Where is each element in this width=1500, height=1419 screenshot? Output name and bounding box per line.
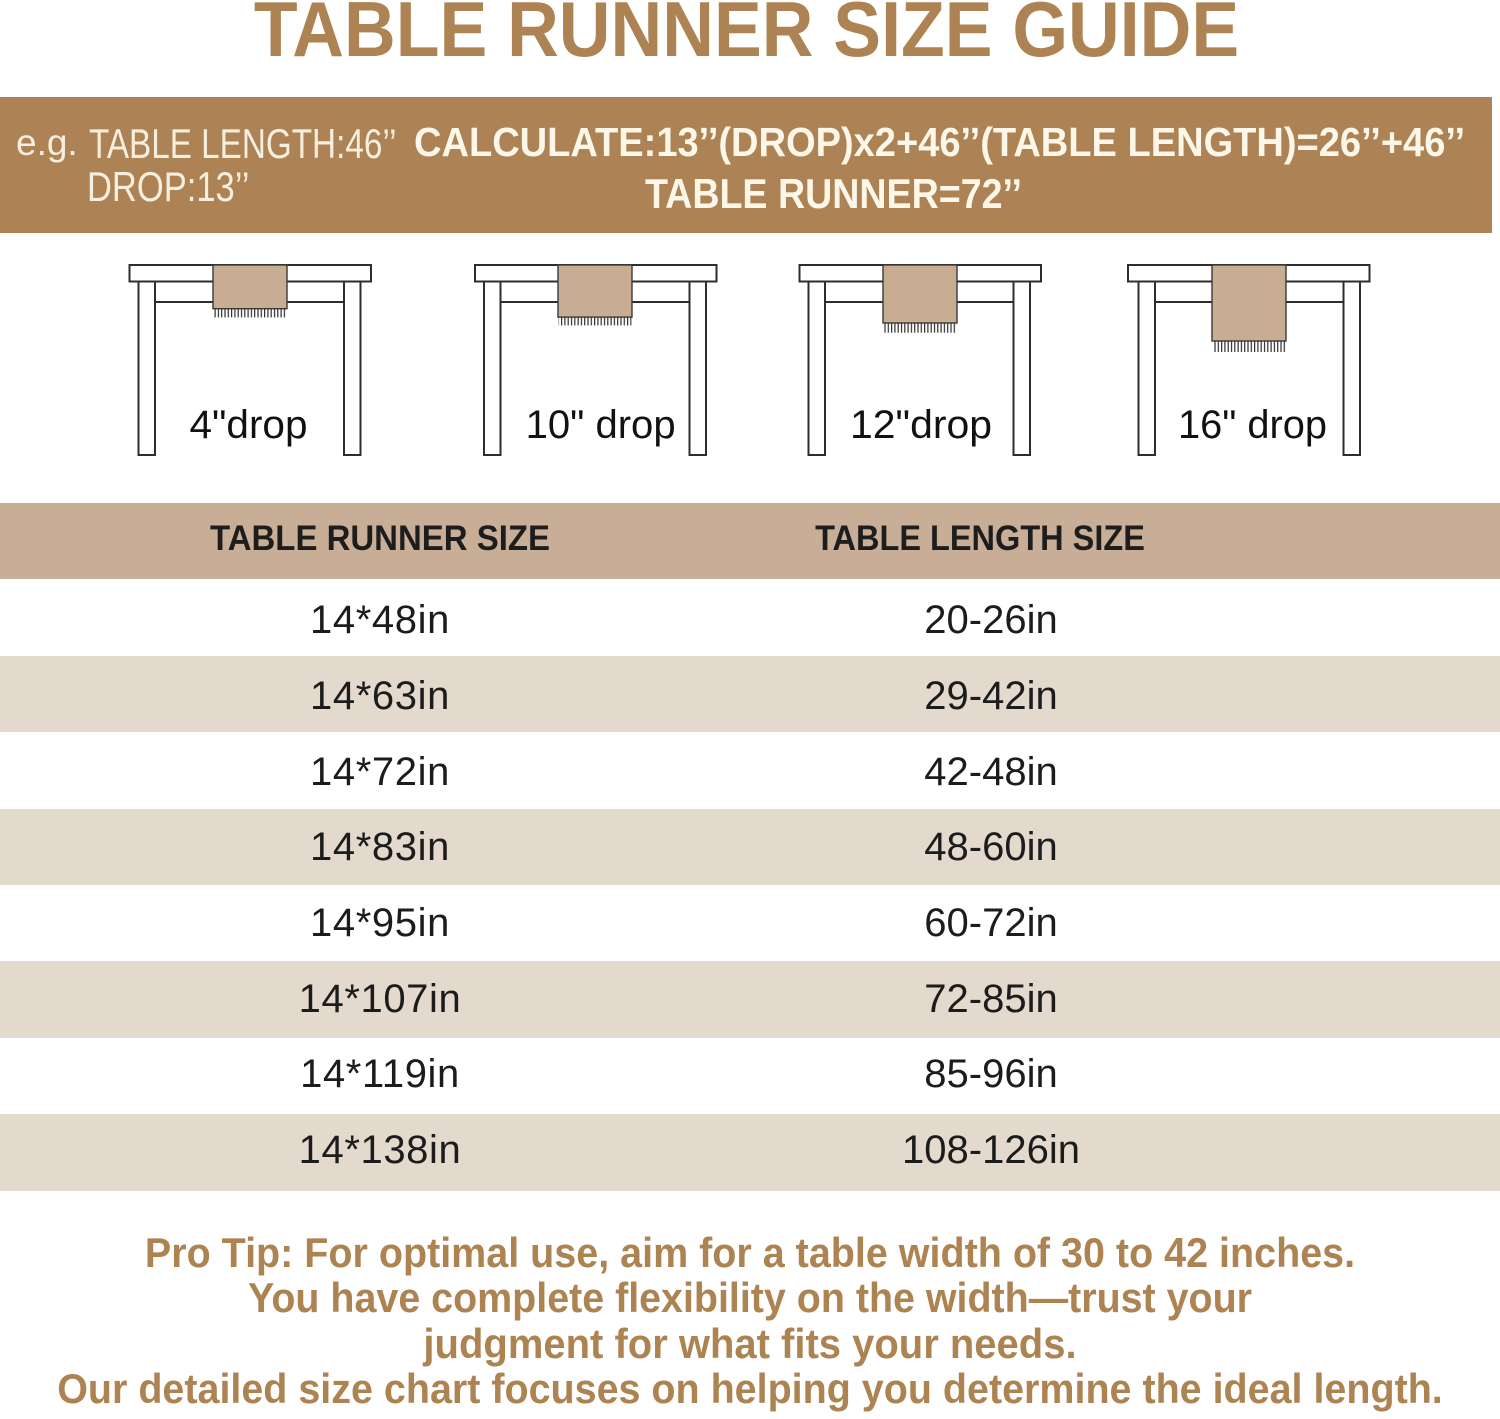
svg-text:10" drop: 10" drop [526,403,676,447]
svg-text:16" drop: 16" drop [1178,403,1327,447]
svg-text:4"drop: 4"drop [190,403,308,447]
svg-text:12"drop: 12"drop [850,403,992,447]
